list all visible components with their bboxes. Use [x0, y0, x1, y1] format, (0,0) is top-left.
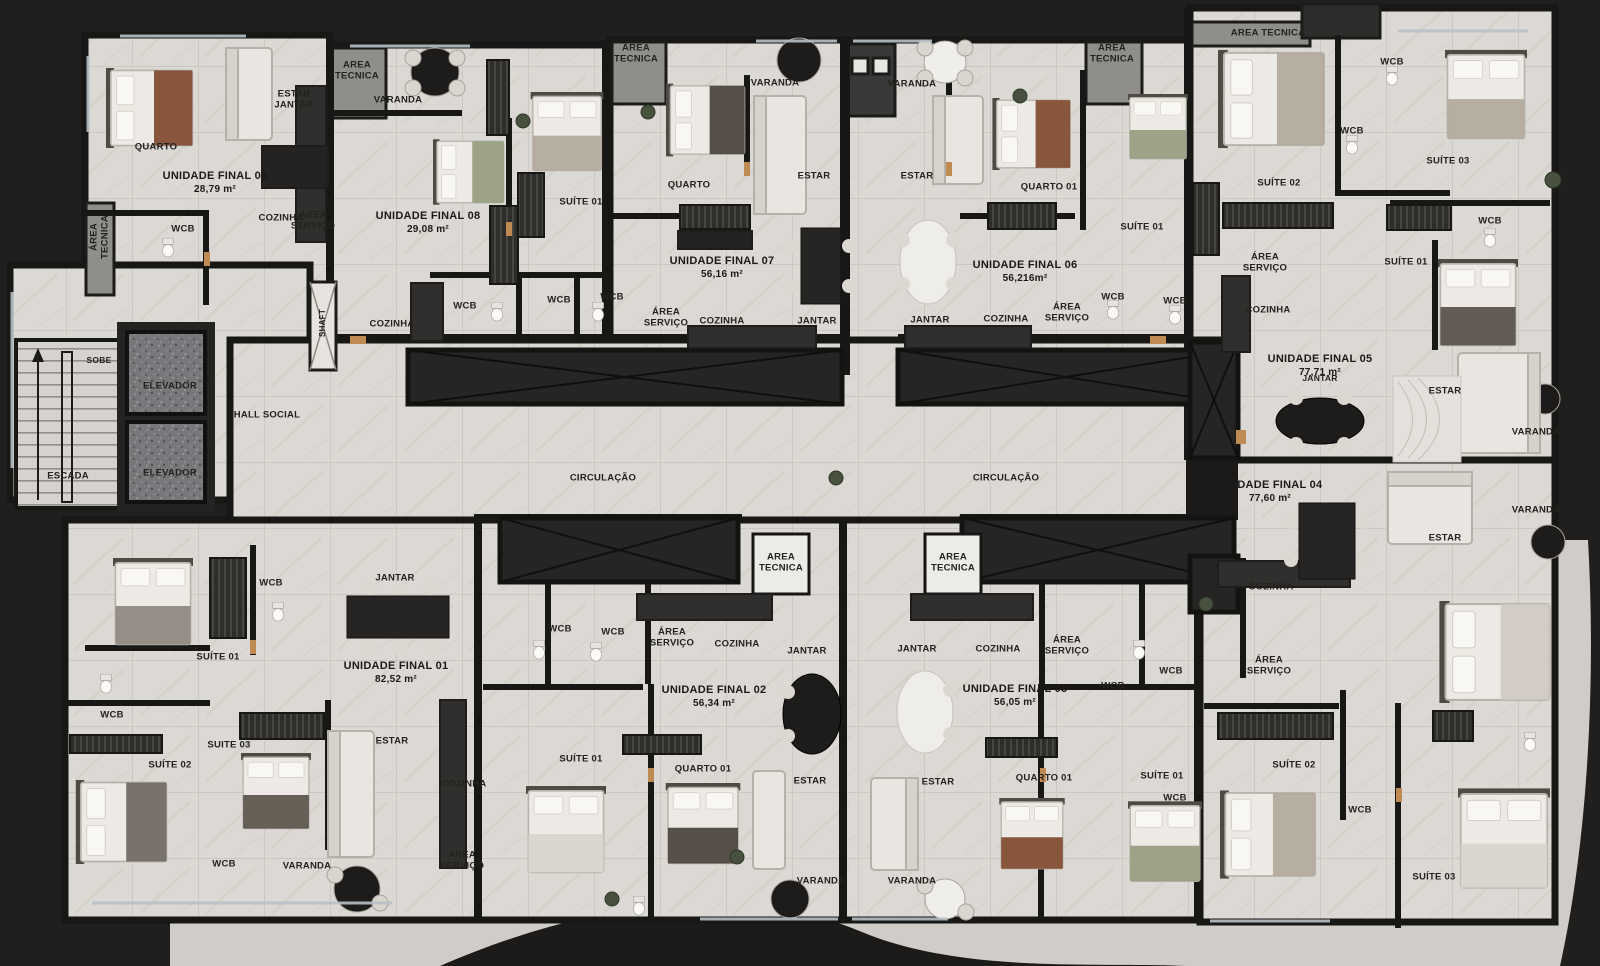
floor-plan-scene: UNIDADE FINAL 0928,79 m²UNIDADE FINAL 08…	[0, 0, 1600, 966]
floor-plan-drawing	[0, 0, 1600, 966]
